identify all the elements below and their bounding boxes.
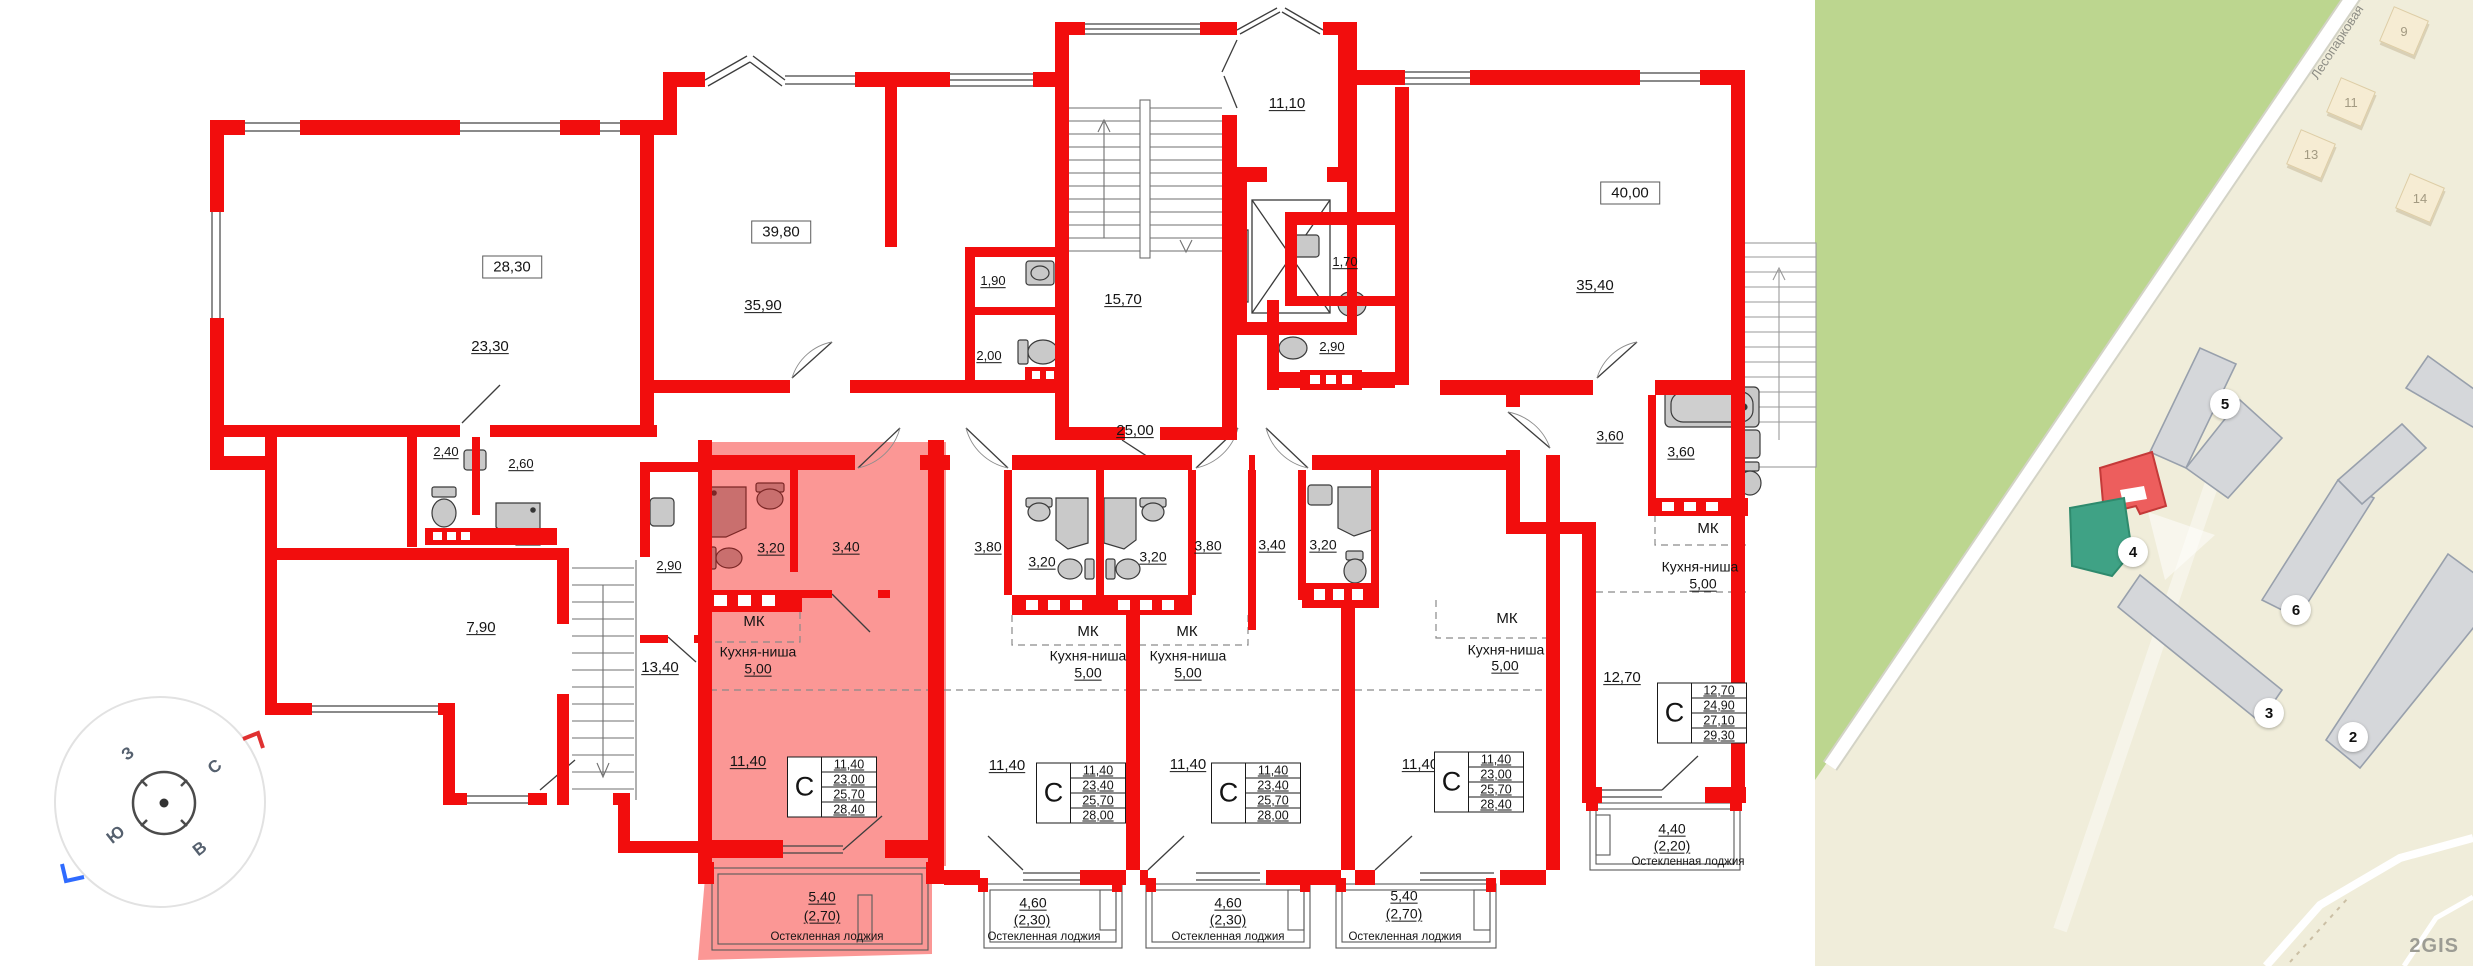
studio-area-value: 27,10 [1692,713,1746,728]
compass-center-dot [160,799,169,808]
total-area-39-80: 39,80 [751,221,811,244]
loggia-pink-a: 5,40 [808,890,835,905]
studio-area-value: 24,90 [1692,698,1746,713]
studio-area-value: 23,40 [1071,778,1125,793]
studio-areas-column: 12,7024,9027,1029,30 [1692,684,1746,743]
room-11-10: 11,10 [1269,96,1305,112]
left-staircase [572,560,636,800]
kitchen-u3-area: 5,00 [1174,666,1201,681]
room-3-60-b: 3,60 [1667,445,1694,460]
studio-area-value: 23,00 [822,772,876,787]
map-pane[interactable] [1815,0,2473,966]
map-badge-6[interactable]: 6 [2281,595,2311,625]
loggia-u4-a: 5,40 [1390,889,1417,904]
studio-type-letter: С [788,758,822,817]
kitchen-u5: Кухня-ниша [1662,560,1739,575]
studio-area-value: 25,70 [822,787,876,802]
mk-u4: МК [1496,611,1517,627]
shower-icon [1104,498,1136,549]
loggia-caption-u5: Остекленная лоджия [1631,856,1744,868]
studio-area-value: 25,70 [1071,793,1125,808]
kitchen-pink: Кухня-ниша [720,645,797,660]
studio-area-value: 11,40 [1071,764,1125,778]
kitchen-pink-area: 5,00 [744,662,771,677]
room-13-40: 13,40 [641,660,679,676]
studio-areas-column: 11,4023,0025,7028,40 [822,758,876,817]
studio-type-letter: С [1212,764,1246,823]
toilet-icon [1116,559,1140,579]
compass [55,697,265,907]
loggia-u2-a: 4,60 [1019,896,1046,911]
studio-table-pink: С11,4023,0025,7028,40 [787,757,877,818]
mk-pink: МК [743,614,764,630]
total-area-28-30: 28,30 [482,256,542,279]
map-house-11: 11 [2332,83,2370,121]
room-2-00: 2,00 [976,349,1001,363]
kitchen-u3: Кухня-ниша [1150,649,1227,664]
mk-u5: МК [1697,521,1718,537]
studio-table-u3: С11,4023,4025,7028,00 [1211,763,1301,824]
loggia-u2-b: (2,30) [1014,913,1051,928]
studio-table-u5: С12,7024,9027,1029,30 [1657,683,1747,744]
studio-area-value: 12,70 [1692,684,1746,698]
studio-table-u4: С11,4023,0025,7028,40 [1434,752,1524,813]
map-house-14: 14 [2401,179,2439,217]
room-3-80-u2: 3,80 [974,540,1001,555]
loggia-caption-u3: Остекленная лоджия [1171,931,1284,943]
room-3-20-u4: 3,20 [1309,538,1336,553]
toilet-icon [1018,340,1028,364]
mk-u3: МК [1176,624,1197,640]
map-house-9: 9 [2385,12,2423,50]
studio-type-letter: С [1435,753,1469,812]
loggia-caption-u4: Остекленная лоджия [1348,931,1461,943]
room-2-90-left: 2,90 [656,559,681,573]
total-area-40-00: 40,00 [1600,182,1660,205]
room-3-80-u3: 3,80 [1194,539,1221,554]
room-3-20-u3: 3,20 [1139,550,1166,565]
studio-area-value: 28,00 [1071,808,1125,823]
loggia-caption-u2: Остекленная лоджия [987,931,1100,943]
map-house-13: 13 [2292,135,2330,173]
room-2-90-right: 2,90 [1319,340,1344,354]
studio-area-value: 23,00 [1469,767,1523,782]
room-3-20-pink: 3,20 [757,541,784,556]
room-3-40-u4: 3,40 [1258,538,1285,553]
kitchen-u2: Кухня-ниша [1050,649,1127,664]
studio-area-value: 11,40 [1246,764,1300,778]
studio-areas-column: 11,4023,4025,7028,00 [1071,764,1125,823]
map-entrance-building[interactable] [2070,498,2132,576]
room-1-70: 1,70 [1332,255,1357,269]
room-11-40-u4: 11,40 [1402,757,1438,773]
room-3-60-a: 3,60 [1596,429,1623,444]
floorplan-viewer: 23,3035,901,902,0015,7011,101,702,9025,0… [0,0,2473,966]
main-staircase [1068,100,1222,258]
sink-icon [650,498,674,526]
studio-type-letter: С [1658,684,1692,743]
house-number: 14 [2401,179,2439,217]
sink-icon [1308,485,1332,505]
room-7-90: 7,90 [466,620,495,636]
map-badge-3[interactable]: 3 [2254,698,2284,728]
loggia-u3-b: (2,30) [1210,913,1247,928]
room-11-40-u2: 11,40 [989,758,1025,774]
studio-area-value: 11,40 [1469,753,1523,767]
room-15-70: 15,70 [1104,292,1142,308]
corridor-25-00: 25,00 [1116,423,1154,439]
room-12-70: 12,70 [1603,670,1641,686]
room-35-40: 35,40 [1576,278,1614,294]
studio-area-value: 29,30 [1692,728,1746,743]
studio-area-value: 25,70 [1469,782,1523,797]
studio-area-value: 28,40 [822,802,876,817]
studio-area-value: 28,40 [1469,797,1523,812]
kitchen-u5-area: 5,00 [1689,577,1716,592]
kitchen-u2-area: 5,00 [1074,666,1101,681]
studio-areas-column: 11,4023,0025,7028,40 [1469,753,1523,812]
house-number: 9 [2385,12,2423,50]
loggia-caption-pink: Остекленная лоджия [770,931,883,943]
house-number: 11 [2332,83,2370,121]
studio-area-value: 11,40 [822,758,876,772]
room-3-40-pink: 3,40 [832,540,859,555]
map-badge-5[interactable]: 5 [2210,389,2240,419]
room-11-40-pink: 11,40 [730,754,766,770]
loggia-pink-b: (2,70) [804,909,841,924]
studio-area-value: 28,00 [1246,808,1300,823]
studio-area-value: 23,40 [1246,778,1300,793]
studio-table-u2: С11,4023,4025,7028,00 [1036,763,1126,824]
toilet-icon [432,487,456,497]
studio-area-value: 25,70 [1246,793,1300,808]
kitchen-u4: Кухня-ниша [1468,643,1545,658]
map-badge-4[interactable]: 4 [2118,537,2148,567]
map-badge-2[interactable]: 2 [2338,722,2368,752]
room-3-20-u2: 3,20 [1028,555,1055,570]
house-number: 13 [2292,135,2330,173]
room-11-40-u3: 11,40 [1170,757,1206,773]
room-2-60: 2,60 [508,457,533,471]
room-1-90: 1,90 [980,274,1005,288]
kitchen-u4-area: 5,00 [1491,659,1518,674]
loggia-u5-a: 4,40 [1658,822,1685,837]
studio-type-letter: С [1037,764,1071,823]
shower-icon [1056,498,1088,549]
toilet-icon [1058,559,1082,579]
room-23-30: 23,30 [471,339,509,355]
room-2-40: 2,40 [433,445,458,459]
room-35-90: 35,90 [744,298,782,314]
studio-areas-column: 11,4023,4025,7028,00 [1246,764,1300,823]
loggia-u5-b: (2,20) [1654,839,1691,854]
loggia-u3-a: 4,60 [1214,896,1241,911]
loggia-u4-b: (2,70) [1386,907,1423,922]
map-watermark: 2GIS [2409,935,2459,958]
mk-u2: МК [1077,624,1098,640]
shower-icon [1338,487,1372,536]
